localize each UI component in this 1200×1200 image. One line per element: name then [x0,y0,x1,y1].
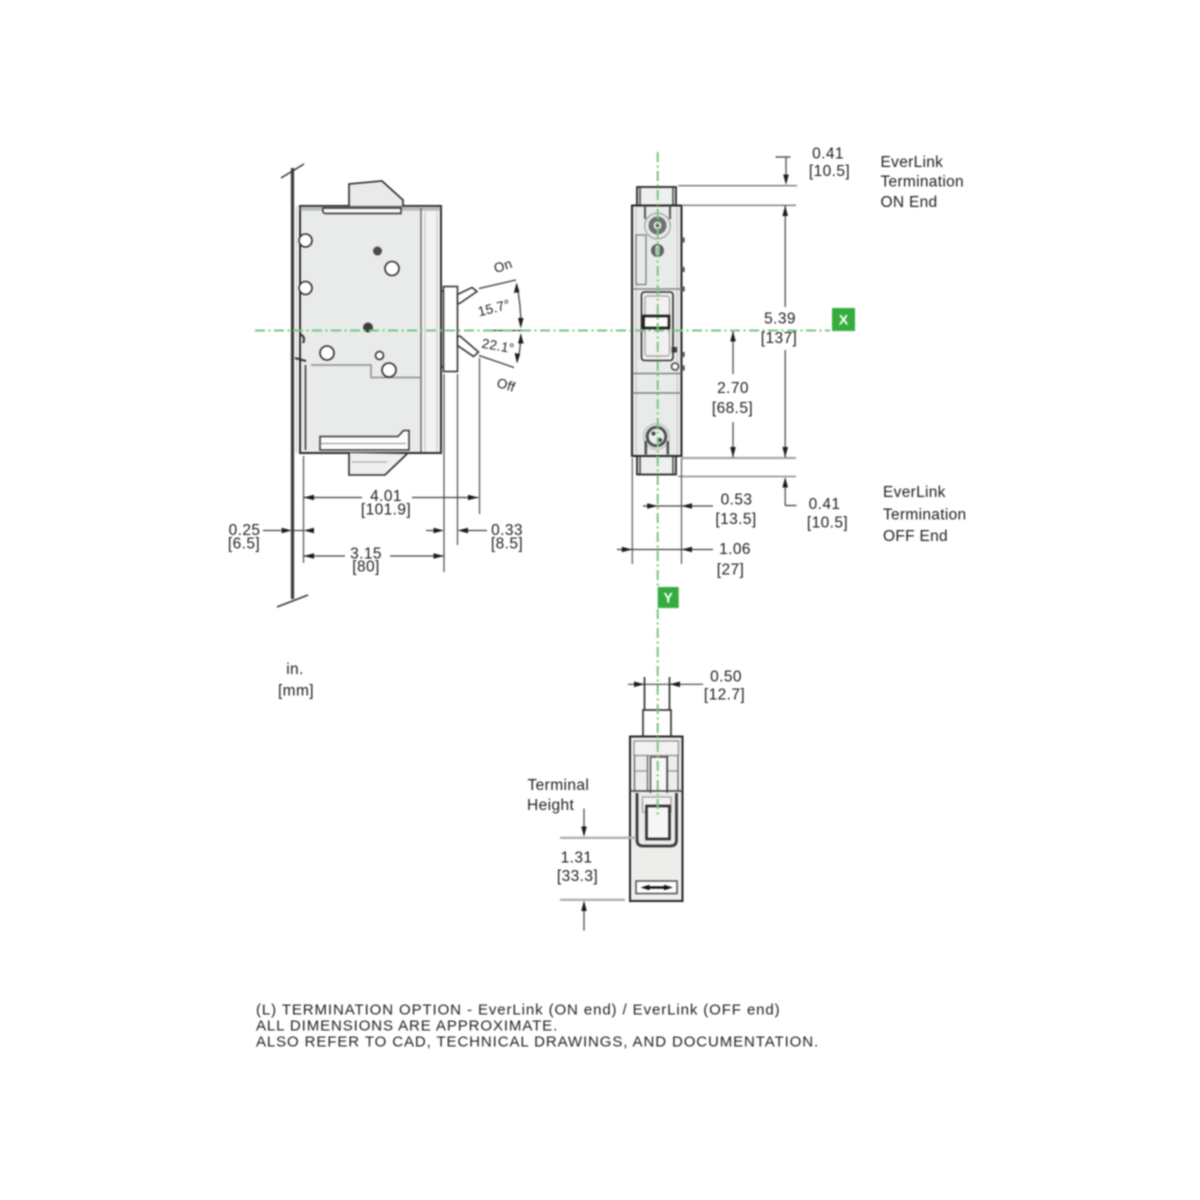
svg-text:1.06: 1.06 [719,541,751,558]
svg-text:[13.5]: [13.5] [715,511,756,528]
svg-text:Height: Height [527,797,574,814]
svg-text:[mm]: [mm] [278,683,314,700]
svg-text:[27]: [27] [717,562,744,579]
svg-text:0.41: 0.41 [809,496,841,513]
svg-text:[10.5]: [10.5] [809,163,850,180]
svg-text:[6.5]: [6.5] [228,536,260,553]
svg-text:EverLink: EverLink [883,484,946,501]
svg-text:(L) TERMINATION OPTION - EverL: (L) TERMINATION OPTION - EverLink (ON en… [256,1002,781,1019]
svg-text:0.50: 0.50 [710,669,742,686]
svg-text:ON End: ON End [881,194,938,211]
svg-text:[101.9]: [101.9] [361,502,411,519]
svg-text:X: X [839,312,849,328]
svg-text:[10.5]: [10.5] [807,515,848,532]
svg-text:Y: Y [664,590,674,606]
svg-text:0.41: 0.41 [812,146,844,163]
svg-text:[12.7]: [12.7] [704,687,745,704]
svg-text:[8.5]: [8.5] [491,536,523,553]
svg-text:[137]: [137] [761,330,797,347]
svg-text:[80]: [80] [352,559,379,576]
svg-text:0.53: 0.53 [721,492,753,509]
svg-text:1.31: 1.31 [561,850,593,867]
svg-text:OFF End: OFF End [883,528,948,545]
svg-text:Terminal: Terminal [528,777,590,794]
svg-text:Termination: Termination [881,174,964,191]
svg-text:Termination: Termination [883,507,966,524]
svg-text:in.: in. [286,661,304,678]
svg-text:ALL DIMENSIONS ARE APPROXIMATE: ALL DIMENSIONS ARE APPROXIMATE. [256,1018,558,1035]
svg-text:ALSO REFER TO CAD, TECHNICAL D: ALSO REFER TO CAD, TECHNICAL DRAWINGS, A… [256,1034,819,1051]
svg-text:[33.3]: [33.3] [557,868,598,885]
svg-text:EverLink: EverLink [881,154,944,171]
svg-text:2.70: 2.70 [717,380,749,397]
svg-text:[68.5]: [68.5] [712,400,753,417]
svg-text:5.39: 5.39 [764,311,796,328]
